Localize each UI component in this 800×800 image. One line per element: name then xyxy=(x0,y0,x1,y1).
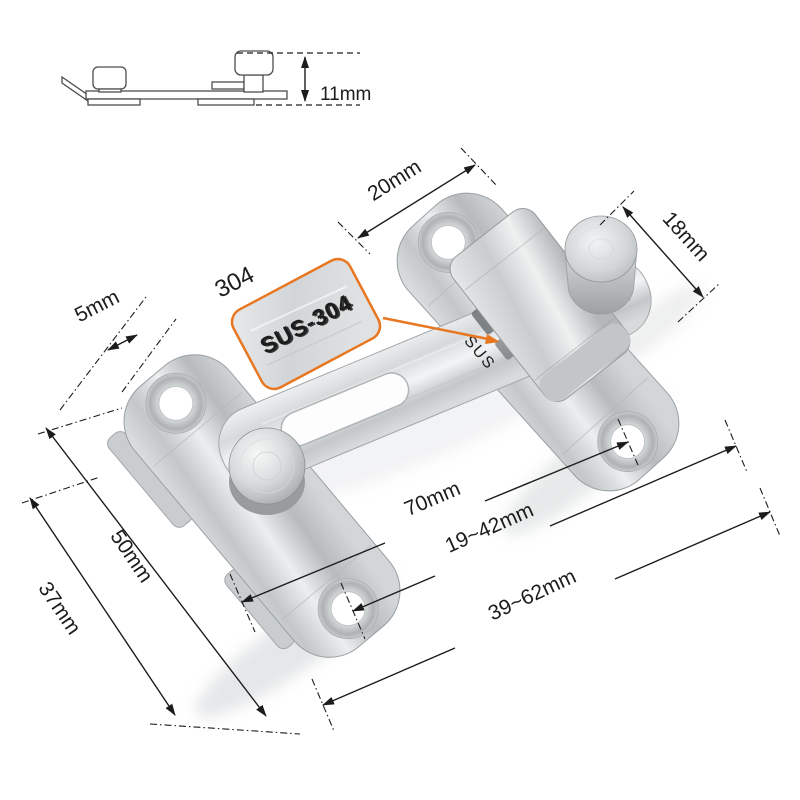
pivot-pin xyxy=(229,428,305,515)
side-view-knob xyxy=(235,51,273,75)
latch-knob xyxy=(565,216,637,314)
side-view-pin-head xyxy=(93,67,126,89)
product-dimension-diagram: SUS 11mm 304 xyxy=(0,0,800,800)
diagram-canvas: SUS 11mm 304 xyxy=(0,0,800,800)
dim-11mm-label: 11mm xyxy=(320,84,371,105)
